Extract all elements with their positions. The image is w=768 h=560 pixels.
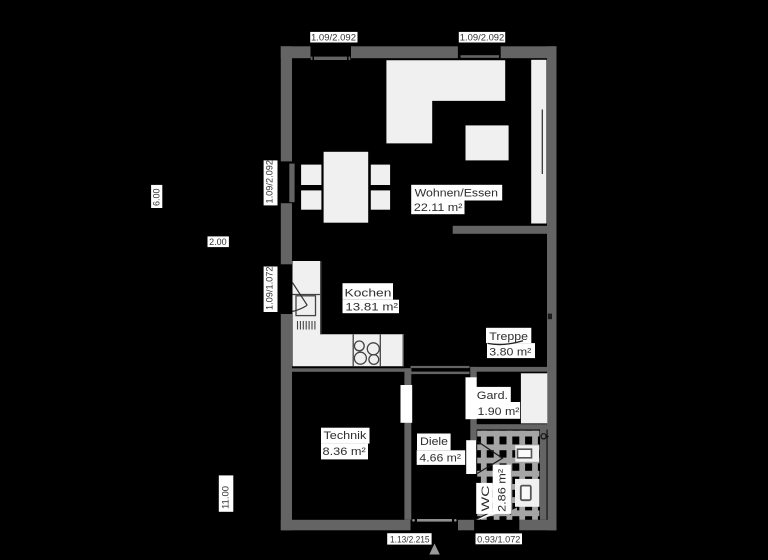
svg-text:22.11 m²: 22.11 m² <box>414 202 463 214</box>
svg-text:4.66 m²: 4.66 m² <box>419 452 461 464</box>
svg-text:8.36 m²: 8.36 m² <box>323 446 367 458</box>
svg-text:3.80 m²: 3.80 m² <box>489 346 531 358</box>
svg-text:Gard.: Gard. <box>477 390 508 402</box>
svg-text:Wohnen/Essen: Wohnen/Essen <box>415 187 498 199</box>
svg-text:1.09/2.092: 1.09/2.092 <box>265 160 275 204</box>
svg-text:Technik: Technik <box>324 430 367 442</box>
svg-text:0.93/1.072: 0.93/1.072 <box>477 534 520 544</box>
svg-text:11.00: 11.00 <box>221 486 231 509</box>
svg-text:1.09/1.072: 1.09/1.072 <box>265 266 275 310</box>
svg-text:1.90 m²: 1.90 m² <box>478 406 520 418</box>
svg-text:WC: WC <box>480 485 492 511</box>
svg-text:1.13/2.215: 1.13/2.215 <box>390 534 430 544</box>
svg-text:Treppe: Treppe <box>489 331 528 343</box>
svg-text:13.81 m²: 13.81 m² <box>345 301 398 313</box>
svg-text:Kochen: Kochen <box>345 288 392 300</box>
svg-text:2.86 m²: 2.86 m² <box>497 469 509 512</box>
svg-text:2.00: 2.00 <box>209 237 227 247</box>
svg-text:1.09/2.092: 1.09/2.092 <box>460 32 505 42</box>
svg-text:6.00: 6.00 <box>152 188 162 206</box>
svg-text:Diele: Diele <box>420 436 448 448</box>
svg-text:1.09/2.092: 1.09/2.092 <box>311 32 356 42</box>
